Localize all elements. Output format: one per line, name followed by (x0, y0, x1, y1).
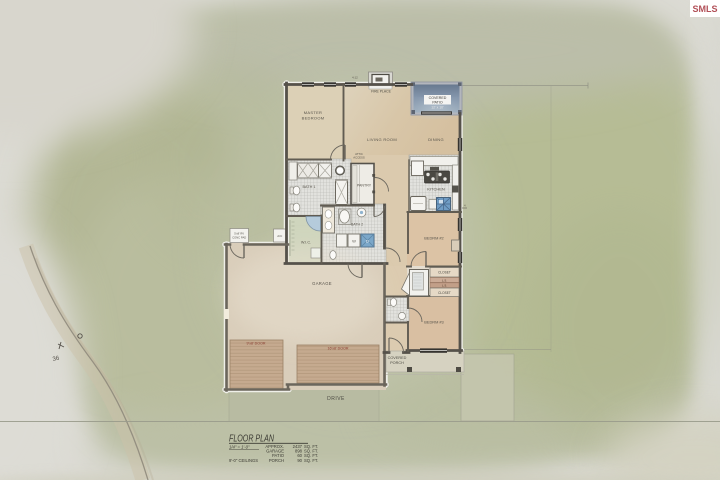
svg-text:DRIVE: DRIVE (327, 396, 345, 402)
svg-text:CLOSET: CLOSET (438, 271, 451, 275)
svg-text:L.S.: L.S. (442, 278, 447, 282)
svg-text:W.I.C.: W.I.C. (301, 241, 311, 245)
svg-text:KITCHEN: KITCHEN (427, 187, 445, 192)
svg-text:A/C: A/C (277, 234, 283, 238)
svg-text:LIVING ROOM: LIVING ROOM (367, 137, 397, 142)
svg-text:CLOSET: CLOSET (438, 291, 451, 295)
svg-text:CONC PAD: CONC PAD (232, 236, 246, 240)
svg-text:PATIO: PATIO (432, 100, 442, 104)
svg-text:16'x8' DOOR: 16'x8' DOOR (328, 347, 349, 351)
svg-text:ACCESS: ACCESS (353, 155, 365, 159)
svg-text:12' x 10': 12' x 10' (431, 106, 444, 110)
svg-text:W: W (352, 239, 356, 244)
svg-text:90: 90 (297, 458, 302, 463)
svg-text:DINING: DINING (428, 137, 444, 142)
svg-text:BEDRM #3: BEDRM #3 (424, 320, 443, 325)
svg-text:9'x8' DOOR: 9'x8' DOOR (247, 342, 266, 346)
svg-text:D: D (366, 239, 369, 244)
svg-text:1/4" = 1'-0": 1/4" = 1'-0" (229, 444, 250, 449)
svg-text:BATH 2: BATH 2 (351, 223, 363, 227)
svg-text:9'-0" CEILINGS: 9'-0" CEILINGS (229, 458, 258, 463)
svg-text:SMLS: SMLS (692, 4, 717, 14)
svg-text:SQ. FT.: SQ. FT. (304, 458, 318, 463)
svg-text:FIRE PLACE: FIRE PLACE (371, 90, 392, 94)
svg-text:5'x8' RV: 5'x8' RV (234, 232, 244, 236)
svg-text:PORCH: PORCH (269, 458, 284, 463)
svg-text:BEDRM #2: BEDRM #2 (424, 236, 443, 241)
svg-text:PORCH: PORCH (390, 361, 404, 365)
svg-text:BEDROOM: BEDROOM (302, 116, 325, 121)
svg-text:COVERED: COVERED (388, 356, 407, 360)
svg-text:MASTER: MASTER (304, 110, 322, 115)
svg-text:GARAGE: GARAGE (312, 281, 332, 286)
svg-text:PANTRY: PANTRY (357, 184, 372, 188)
svg-text:4:12: 4:12 (352, 76, 358, 80)
svg-text:BATH 1: BATH 1 (302, 185, 315, 189)
svg-text:L.S.: L.S. (442, 284, 447, 288)
